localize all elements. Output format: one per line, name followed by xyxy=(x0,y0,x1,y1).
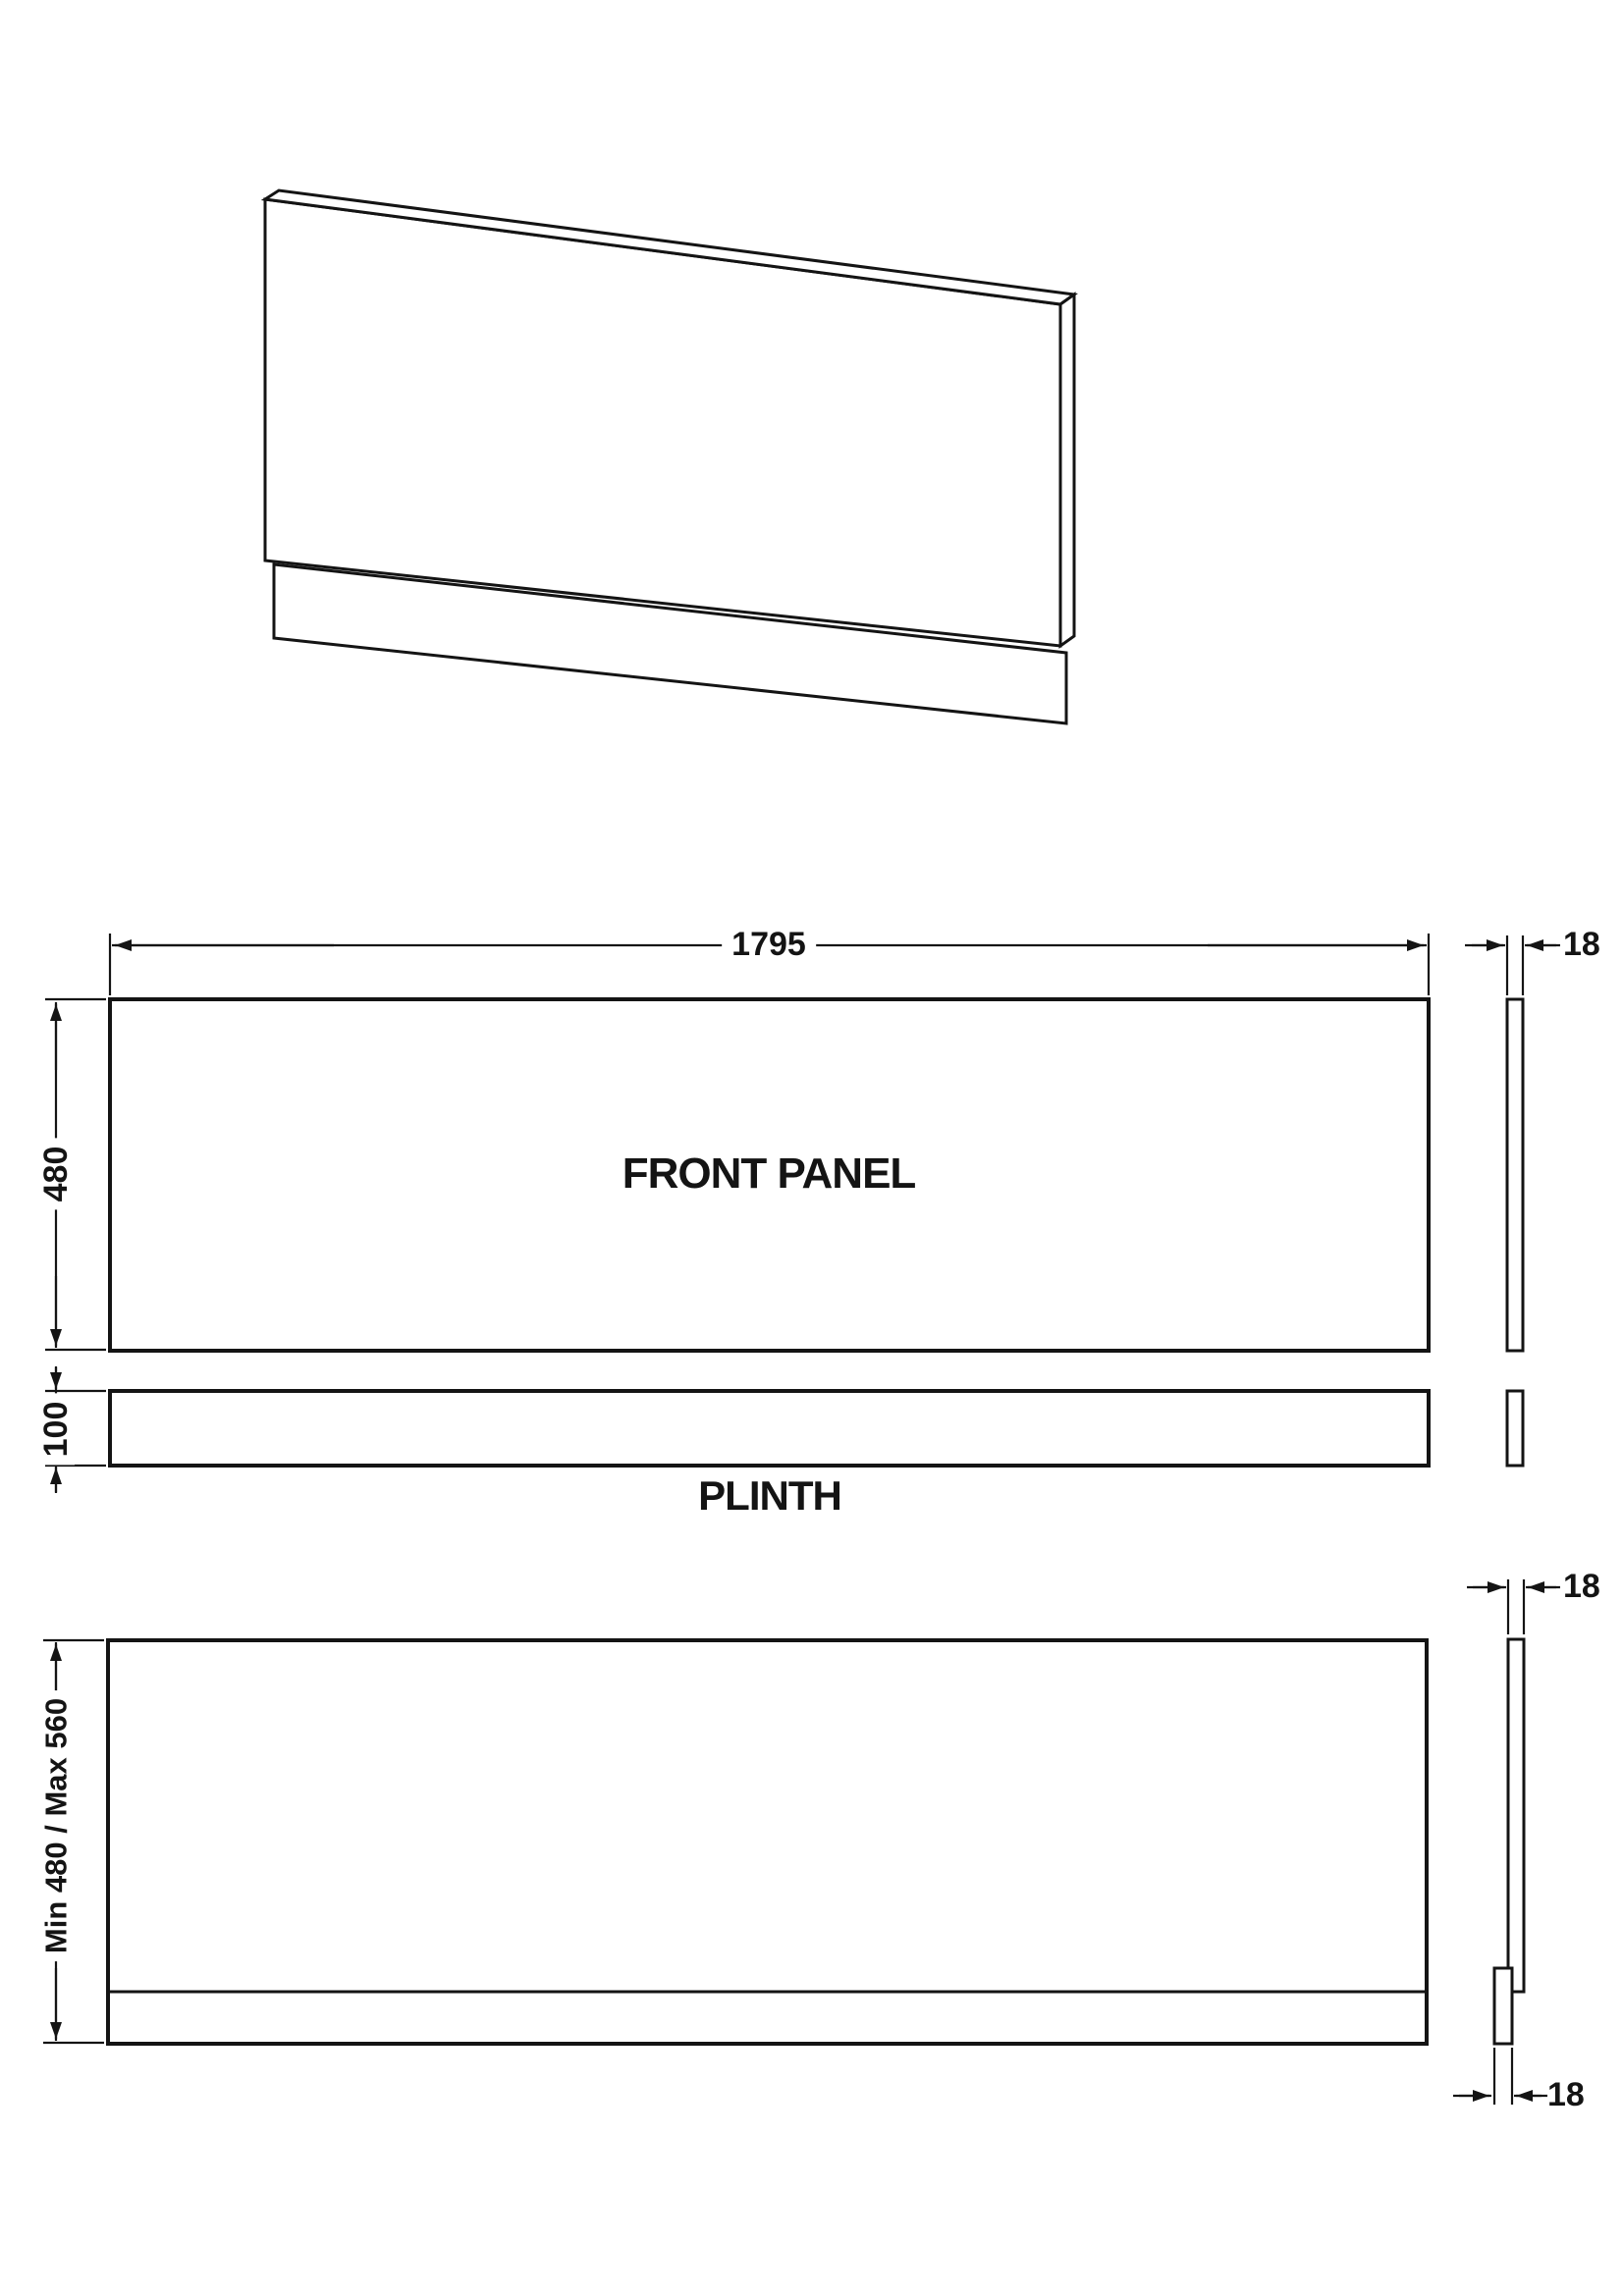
panel-side-view xyxy=(1507,999,1523,1351)
dim-adjustable-height-label: Min 480 / Max 560 xyxy=(39,1690,74,1961)
adjustable-panel-outline xyxy=(108,1640,1427,2044)
plinth-title: PLINTH xyxy=(698,1475,841,1517)
adjustable-plinth-side-view xyxy=(1494,1968,1512,2044)
perspective-view xyxy=(265,190,1074,723)
dim-panel-thickness-label: 18 xyxy=(1563,928,1600,961)
drawing-linework xyxy=(0,0,1623,2296)
adjustable-panel-side-view xyxy=(1508,1639,1524,1992)
dim-adjustable-panel-thickness-label: 18 xyxy=(1563,1570,1600,1603)
dim-adjustable-plinth-thickness-label: 18 xyxy=(1547,2078,1585,2111)
dim-panel-width-label: 1795 xyxy=(722,928,816,961)
front-panel-title: FRONT PANEL xyxy=(622,1152,916,1196)
dim-plinth-height-label: 100 xyxy=(37,1394,75,1466)
dim-panel-height-label: 480 xyxy=(37,1139,75,1210)
plinth-side-view xyxy=(1507,1391,1523,1466)
adjustable-view xyxy=(108,1639,1524,2044)
perspective-panel-side-face xyxy=(1060,294,1074,646)
bath-panel-technical-drawing: 1795 480 100 18 Min 480 / Max 560 18 18 … xyxy=(0,0,1623,2296)
plinth-outline xyxy=(110,1391,1429,1466)
front-view xyxy=(110,999,1523,1466)
dimension-lines xyxy=(43,934,1560,2105)
